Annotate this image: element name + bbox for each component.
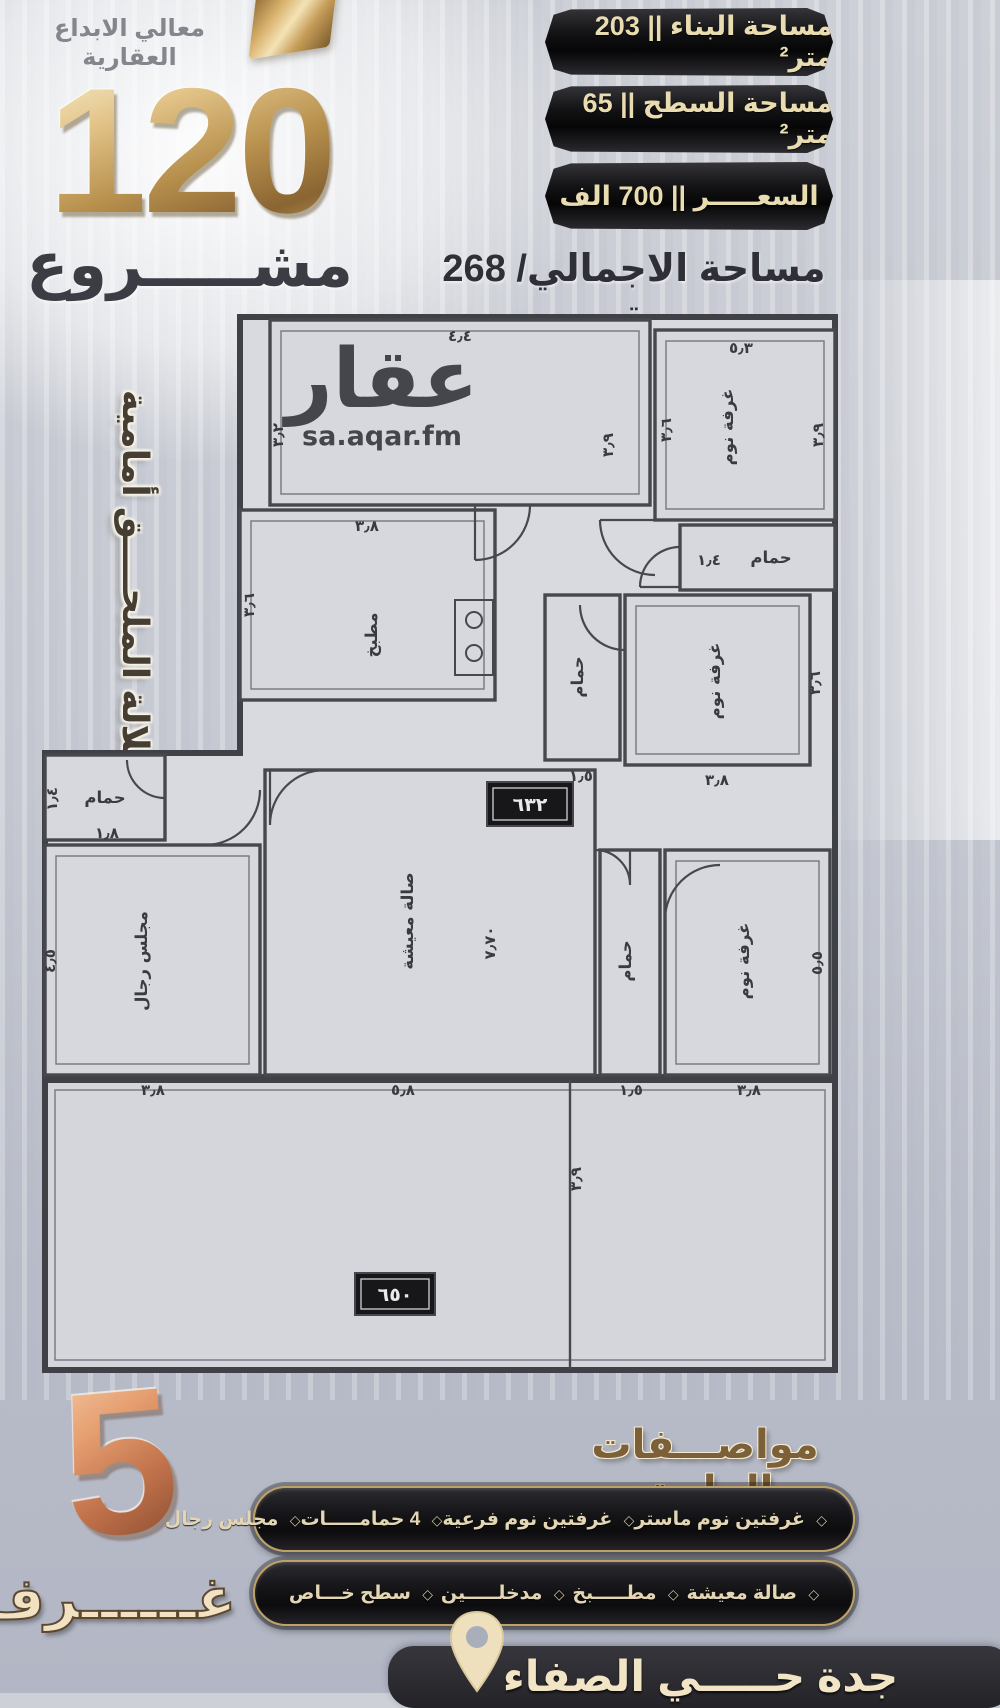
- svg-text:٦٣٢: ٦٣٢: [513, 794, 548, 816]
- background-glow-right: [830, 280, 1000, 840]
- spec-text: غرفتين نوم ماستر: [634, 1509, 805, 1530]
- dim-label: ٣٫٨: [355, 517, 379, 535]
- spec-item: ◇ مدخلـــــين: [441, 1582, 565, 1605]
- room-label-bedroom-tr: غرفة نوم: [718, 389, 738, 466]
- floor-plan: ٤٫٤ ٣٫٢ ٣٫٩ ٥٫٣ ٣٫٦ ٣٫٩ ١٫٤ ٣٫٨ ٣٫٦ ١٫٥ …: [25, 305, 845, 1375]
- rooms-word: غــــــرف: [8, 1566, 236, 1632]
- dim-label: ٣٫٢: [269, 423, 287, 447]
- dim-label: ١٫٤: [697, 551, 721, 569]
- room-kitchen: [240, 510, 495, 700]
- room-label-bath-bm: حمام: [616, 940, 635, 981]
- spec-item: ◇ 4 حمامـــــات: [300, 1508, 442, 1531]
- ribbon-building-area-label: مساحة البناء || 203 متر²: [545, 11, 833, 73]
- dim-label: ٥٫٥: [808, 951, 826, 975]
- watermark-site: sa.aqar.fm: [302, 421, 462, 452]
- dim-label: ٧٫٧٠: [481, 926, 499, 959]
- spec-pill-1: ◇ غرفتين نوم ماستر ◇ غرفتين نوم فرعية ◇ …: [253, 1486, 855, 1552]
- spec-item: ◇ غرفتين نوم فرعية: [442, 1508, 634, 1531]
- dim-label: ٣٫٨: [705, 771, 729, 789]
- dim-label: ١٫٤: [43, 787, 61, 811]
- dim-label: ٣٫٨: [737, 1081, 761, 1099]
- spec-text: 4 حمامـــــات: [300, 1509, 420, 1530]
- dim-label: ٥٫٣: [729, 339, 753, 357]
- dim-label: ٣٫٩: [599, 433, 617, 457]
- ribbon-building-area: مساحة البناء || 203 متر²: [545, 8, 833, 76]
- room-label-bath-mid: حمام: [568, 656, 587, 697]
- area-tag-650: ٦٥٠: [355, 1273, 435, 1315]
- area-tag-632: ٦٣٢: [487, 782, 573, 826]
- rooms-count: 5: [21, 1353, 218, 1573]
- ribbon-roof-area: مساحة السطح || 65 متر²: [545, 85, 833, 153]
- room-label-majlis: مجلس رجال: [132, 911, 151, 1011]
- spec-text: غرفتين نوم فرعية: [442, 1509, 612, 1530]
- diamond-icon: ◇: [668, 1586, 679, 1602]
- spec-text: مجلس رجال: [165, 1509, 279, 1530]
- room-label-living: صالة معيشة: [398, 872, 417, 969]
- ribbon-price-label: السعـــــر || 700 الف: [559, 181, 818, 212]
- spec-text: مطـــــبخ: [572, 1583, 656, 1604]
- location-text: جدة حـــــي الصفاء: [503, 1652, 898, 1702]
- ribbon-price: السعـــــر || 700 الف: [545, 162, 833, 230]
- spec-item: ◇ مجلس رجال: [165, 1508, 301, 1531]
- dim-label: ٥٫٨: [391, 1081, 415, 1099]
- spec-item: ◇ صالة معيشة: [687, 1582, 820, 1605]
- diamond-icon: ◇: [624, 1512, 635, 1528]
- location-pin-icon: [448, 1610, 506, 1693]
- room-label-bath-tr: حمام: [750, 548, 791, 567]
- dim-label: ٣٫٦: [806, 671, 824, 695]
- spec-item: ◇ مطـــــبخ: [572, 1582, 678, 1605]
- room-label-bedroom-br: غرفة نوم: [734, 923, 754, 1000]
- spec-item: ◇ سطح خـــاص: [289, 1582, 433, 1605]
- svg-text:٦٥٠: ٦٥٠: [378, 1284, 413, 1306]
- spec-text: مدخلـــــين: [441, 1583, 543, 1604]
- dim-label: ٤٫٥: [41, 949, 59, 973]
- spec-pill-2: ◇ صالة معيشة ◇ مطـــــبخ ◇ مدخلـــــين ◇…: [253, 1560, 855, 1626]
- ribbon-roof-area-label: مساحة السطح || 65 متر²: [545, 88, 833, 150]
- dim-label: ٣٫٩: [567, 1167, 585, 1191]
- diamond-icon: ◇: [290, 1512, 301, 1528]
- dim-label: ٣٫٩: [809, 423, 827, 447]
- watermark-logo: عقار: [281, 332, 478, 427]
- diamond-icon: ◇: [422, 1586, 433, 1602]
- spec-text: سطح خـــاص: [289, 1583, 411, 1604]
- dim-label: ١٫٨: [95, 824, 119, 842]
- spec-text: صالة معيشة: [687, 1583, 798, 1604]
- dim-label: ٣٫٨: [141, 1081, 165, 1099]
- room-majlis: [45, 845, 260, 1075]
- diamond-icon: ◇: [432, 1512, 443, 1528]
- room-label-bath-ll: حمام: [84, 788, 125, 807]
- info-ribbons: مساحة البناء || 203 متر² مساحة السطح || …: [545, 8, 833, 239]
- room-label-kitchen: مطبخ: [362, 613, 382, 658]
- room-bedroom-top-right: [655, 330, 835, 520]
- dim-label: ٣٫٦: [240, 593, 258, 617]
- diamond-icon: ◇: [816, 1512, 827, 1528]
- diamond-icon: ◇: [808, 1586, 819, 1602]
- project-number: 120: [18, 58, 363, 245]
- diamond-icon: ◇: [554, 1586, 565, 1602]
- spec-item: ◇ غرفتين نوم ماستر: [634, 1508, 827, 1531]
- plan-terrace: [45, 1080, 835, 1370]
- dim-label: ١٫٥: [619, 1081, 643, 1099]
- room-label-bedroom-mid: غرفة نوم: [705, 643, 725, 720]
- project-word: مشـــــروع: [28, 228, 353, 301]
- dim-label: ٣٫٦: [657, 418, 675, 442]
